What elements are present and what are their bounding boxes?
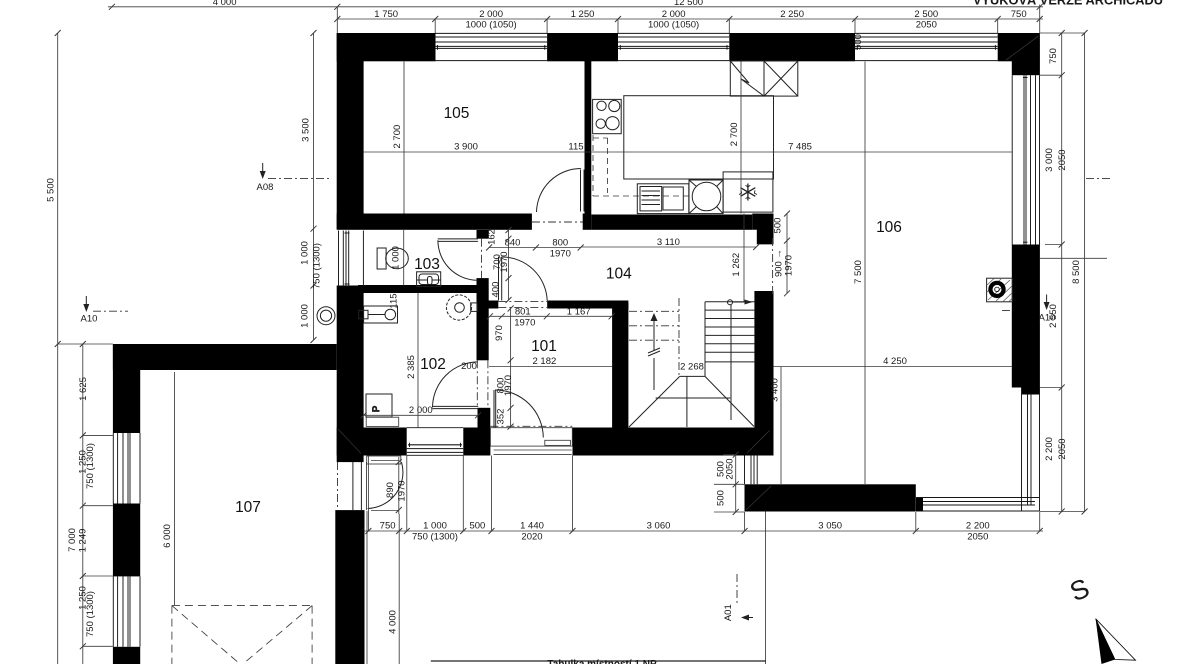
- svg-text:7 000: 7 000: [67, 528, 78, 552]
- svg-text:4 000: 4 000: [213, 0, 237, 8]
- svg-text:1000 (1050): 1000 (1050): [648, 20, 699, 31]
- svg-text:1970: 1970: [550, 248, 571, 259]
- svg-text:1 250: 1 250: [571, 9, 595, 20]
- svg-text:2 700: 2 700: [729, 122, 740, 146]
- svg-text:750 (1300): 750 (1300): [312, 243, 323, 289]
- svg-text:103: 103: [414, 256, 440, 273]
- svg-text:2 182: 2 182: [533, 356, 557, 367]
- svg-text:1970: 1970: [499, 251, 510, 272]
- svg-text:2 268: 2 268: [680, 362, 704, 373]
- svg-text:1000 (1050): 1000 (1050): [465, 20, 516, 31]
- svg-text:1 167: 1 167: [567, 307, 591, 318]
- svg-text:352: 352: [496, 409, 507, 425]
- svg-text:115: 115: [568, 142, 583, 153]
- svg-text:102: 102: [420, 356, 446, 373]
- svg-text:800: 800: [552, 237, 568, 248]
- svg-text:3 000: 3 000: [1044, 148, 1055, 172]
- svg-text:104: 104: [606, 266, 632, 283]
- svg-text:2 500: 2 500: [914, 9, 938, 20]
- svg-text:A08: A08: [257, 182, 274, 193]
- svg-text:4 250: 4 250: [883, 356, 907, 367]
- svg-text:3 060: 3 060: [647, 521, 671, 532]
- svg-text:105: 105: [444, 105, 470, 122]
- svg-text:2 200: 2 200: [966, 521, 990, 532]
- svg-text:1970: 1970: [514, 317, 535, 328]
- svg-text:7 485: 7 485: [788, 142, 812, 153]
- svg-text:750: 750: [1011, 9, 1027, 20]
- svg-text:2 000: 2 000: [662, 9, 686, 20]
- svg-text:2050: 2050: [1057, 438, 1068, 459]
- svg-text:7 500: 7 500: [853, 260, 864, 284]
- svg-text:970: 970: [494, 325, 505, 341]
- svg-text:3 900: 3 900: [454, 142, 478, 153]
- svg-text:2 385: 2 385: [406, 355, 417, 379]
- svg-text:2020: 2020: [521, 532, 542, 543]
- svg-text:2 550: 2 550: [1048, 304, 1059, 328]
- svg-text:A10: A10: [81, 314, 98, 325]
- svg-text:500: 500: [716, 490, 727, 506]
- svg-text:6 000: 6 000: [162, 524, 173, 548]
- svg-text:840: 840: [505, 237, 521, 248]
- svg-text:1 440: 1 440: [520, 521, 544, 532]
- svg-text:5 500: 5 500: [46, 178, 57, 202]
- svg-text:500: 500: [773, 218, 784, 234]
- svg-text:500: 500: [853, 34, 864, 50]
- svg-text:801: 801: [515, 307, 531, 318]
- svg-text:101: 101: [531, 338, 557, 355]
- svg-text:750 (1300): 750 (1300): [412, 532, 458, 543]
- svg-text:107: 107: [235, 499, 261, 516]
- svg-text:3 400: 3 400: [770, 378, 781, 402]
- svg-text:500: 500: [469, 521, 485, 532]
- svg-text:2050: 2050: [725, 458, 736, 479]
- svg-text:106: 106: [876, 219, 902, 236]
- svg-text:400: 400: [490, 282, 501, 298]
- svg-text:Tabulka místností 1.NP: Tabulka místností 1.NP: [547, 659, 657, 664]
- svg-text:4 000: 4 000: [388, 610, 399, 634]
- svg-text:3 110: 3 110: [657, 237, 680, 248]
- svg-text:162: 162: [487, 229, 498, 245]
- svg-text:3 500: 3 500: [301, 118, 312, 142]
- svg-text:1 000: 1 000: [391, 246, 402, 270]
- svg-text:1 249: 1 249: [78, 529, 89, 553]
- svg-text:750: 750: [380, 521, 396, 532]
- svg-text:1970: 1970: [397, 480, 408, 501]
- svg-text:200: 200: [461, 361, 477, 372]
- svg-text:P: P: [371, 406, 382, 412]
- svg-text:2 200: 2 200: [1044, 437, 1055, 461]
- svg-text:1 000: 1 000: [300, 304, 311, 328]
- svg-text:2050: 2050: [1057, 149, 1068, 170]
- svg-text:2050: 2050: [916, 20, 937, 31]
- svg-text:1 000: 1 000: [300, 241, 311, 265]
- svg-text:890: 890: [385, 482, 396, 498]
- svg-text:2 700: 2 700: [392, 125, 403, 149]
- svg-text:3 050: 3 050: [818, 521, 842, 532]
- svg-text:A01: A01: [723, 604, 734, 621]
- svg-text:1970: 1970: [503, 375, 514, 396]
- svg-text:1 750: 1 750: [374, 9, 398, 20]
- svg-text:8 500: 8 500: [1071, 260, 1082, 284]
- svg-text:1 262: 1 262: [731, 253, 742, 277]
- svg-text:12 500: 12 500: [674, 0, 703, 8]
- svg-text:750 (1300): 750 (1300): [85, 591, 96, 637]
- svg-text:2 000: 2 000: [479, 9, 503, 20]
- svg-text:750 (1300): 750 (1300): [85, 443, 96, 489]
- svg-text:2 250: 2 250: [780, 9, 804, 20]
- svg-text:750: 750: [1048, 48, 1059, 64]
- svg-text:2050: 2050: [967, 532, 988, 543]
- svg-text:2 000: 2 000: [409, 405, 433, 416]
- svg-text:1 625: 1 625: [78, 377, 89, 401]
- svg-text:1970: 1970: [784, 255, 795, 276]
- svg-text:115: 115: [388, 293, 399, 308]
- svg-text:1 000: 1 000: [423, 521, 447, 532]
